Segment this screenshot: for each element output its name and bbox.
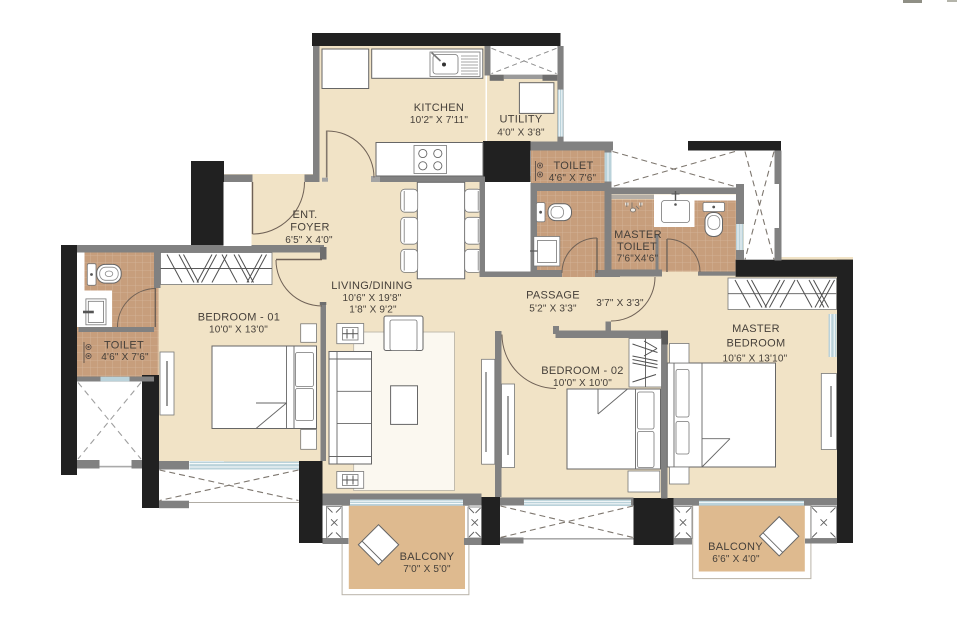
svg-text:MASTER: MASTER [614, 229, 662, 241]
svg-text:3'7" X 3'3": 3'7" X 3'3" [596, 298, 644, 309]
svg-text:KITCHEN: KITCHEN [414, 102, 464, 114]
svg-text:6'6" X 4'0": 6'6" X 4'0" [712, 554, 760, 565]
svg-text:LIVING/DINING: LIVING/DINING [331, 280, 413, 292]
svg-text:BEDROOM - 02: BEDROOM - 02 [541, 365, 623, 377]
svg-text:BALCONY: BALCONY [400, 551, 455, 563]
svg-text:5'2" X 3'3": 5'2" X 3'3" [529, 304, 577, 315]
svg-text:10'6" X 19'8": 10'6" X 19'8" [342, 293, 401, 304]
svg-text:10'2" X 7'11": 10'2" X 7'11" [410, 115, 469, 126]
svg-text:UTILITY: UTILITY [499, 114, 542, 126]
svg-text:10'6" X 13'10": 10'6" X 13'10" [723, 354, 788, 365]
svg-text:6'5" X 4'0": 6'5" X 4'0" [285, 235, 333, 246]
svg-text:4'6" X 7'6": 4'6" X 7'6" [101, 352, 149, 363]
svg-text:MASTER: MASTER [732, 323, 780, 335]
svg-text:7'0" X 5'0": 7'0" X 5'0" [403, 564, 451, 575]
svg-text:FOYER: FOYER [290, 222, 329, 234]
svg-text:PASSAGE: PASSAGE [526, 290, 580, 302]
svg-text:4'6" X 7'6": 4'6" X 7'6" [549, 173, 597, 184]
svg-text:BALCONY: BALCONY [708, 541, 763, 553]
svg-text:1'8" X 9'2": 1'8" X 9'2" [349, 305, 397, 316]
svg-text:10'0" X 13'0": 10'0" X 13'0" [209, 325, 268, 336]
svg-text:ENT.: ENT. [292, 209, 317, 221]
svg-text:7'6"X4'6": 7'6"X4'6" [617, 254, 659, 265]
svg-text:10'0" X 10'0": 10'0" X 10'0" [553, 378, 612, 389]
svg-text:TOILET: TOILET [553, 160, 593, 172]
svg-text:BEDROOM - 01: BEDROOM - 01 [198, 312, 280, 324]
svg-text:TOILET: TOILET [104, 340, 144, 352]
svg-text:TOILET: TOILET [617, 241, 657, 253]
svg-text:4'0" X 3'8": 4'0" X 3'8" [497, 128, 545, 139]
svg-text:BEDROOM: BEDROOM [727, 338, 786, 350]
